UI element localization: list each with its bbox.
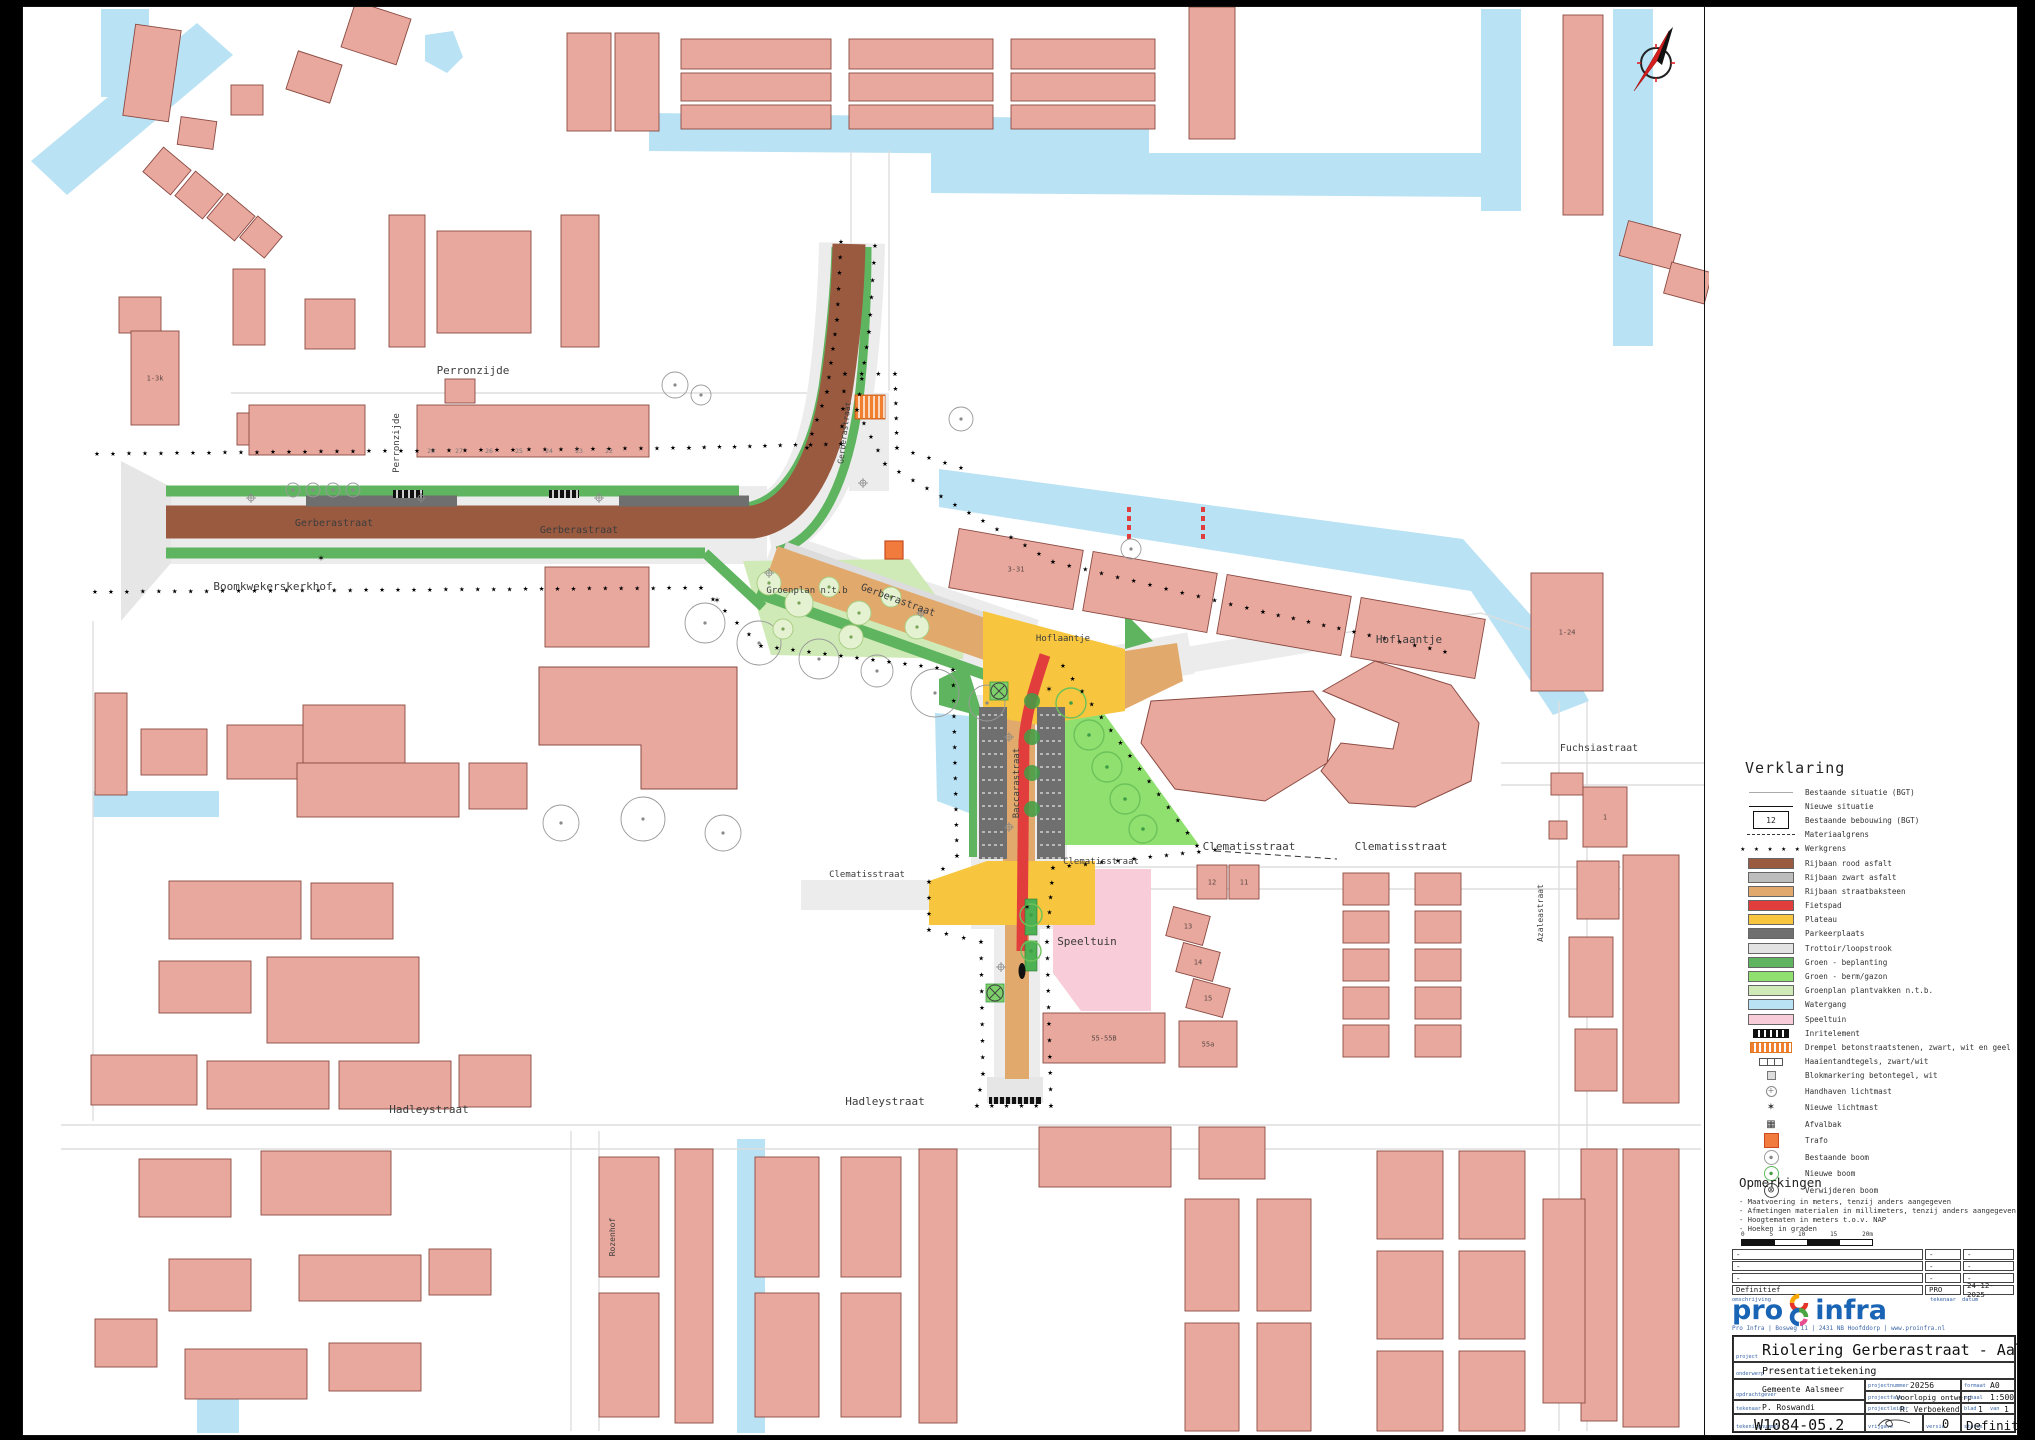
svg-text:23: 23 <box>575 447 583 455</box>
legend-swatch-tiles <box>1745 1058 1797 1066</box>
svg-text:★: ★ <box>1066 561 1072 571</box>
notes-list: - Maatvoering in meters, tenzij anders a… <box>1739 1197 2016 1233</box>
legend-label: Drempel betonstraatstenen, zwart, wit en… <box>1797 1043 2011 1052</box>
svg-text:★: ★ <box>1046 1003 1052 1013</box>
svg-text:★: ★ <box>854 653 860 663</box>
legend-item: Watergang <box>1745 998 2005 1012</box>
legend-item: Rijbaan straatbaksteen <box>1745 884 2005 898</box>
logo-knot-icon <box>1784 1293 1814 1327</box>
svg-text:★: ★ <box>1048 1085 1054 1095</box>
svg-text:★: ★ <box>1147 580 1153 590</box>
tb-project-label: project <box>1736 1354 1758 1360</box>
svg-text:★: ★ <box>682 583 688 593</box>
svg-text:★: ★ <box>876 369 882 379</box>
svg-text:★: ★ <box>619 584 625 594</box>
revision-cell: - <box>1732 1261 1923 1272</box>
svg-text:★: ★ <box>1047 1035 1053 1045</box>
legend-swatch-fill <box>1745 985 1797 996</box>
legend-item: Trafo <box>1745 1132 2005 1149</box>
svg-text:✶: ✶ <box>1024 902 1030 913</box>
svg-text:25: 25 <box>515 447 523 455</box>
svg-text:★: ★ <box>894 443 900 453</box>
tb-vrijgave-cell: vrijgave <box>1865 1414 1923 1432</box>
svg-text:★: ★ <box>142 449 148 459</box>
legend-swatch-fill <box>1745 900 1797 911</box>
scale-tick-label: 15 <box>1830 1231 1837 1238</box>
legend-label: Handhaven lichtmast <box>1797 1087 1892 1096</box>
svg-text:★: ★ <box>954 820 960 830</box>
svg-text:★: ★ <box>1115 572 1121 582</box>
legend-label: Trafo <box>1797 1136 1828 1145</box>
legend-swatch-stars: ★ ★ ★ ★ ★ <box>1745 844 1797 853</box>
svg-text:★: ★ <box>1291 614 1297 624</box>
tb-formaat-cell: formaat A0 <box>1961 1379 2015 1391</box>
legend-item: Groen - beplanting <box>1745 955 2005 969</box>
svg-text:★: ★ <box>140 587 146 597</box>
legend-label: Rijbaan straatbaksteen <box>1797 887 1906 896</box>
svg-text:★: ★ <box>828 358 834 368</box>
tb-tekeningnummer-cell: tekeningnummer W1084-05.2 <box>1733 1414 1865 1432</box>
title-block: project Riolering Gerberastraat - Aalsme… <box>1732 1335 2016 1433</box>
svg-text:Gerberastraat: Gerberastraat <box>295 518 373 529</box>
company-logo: pro infra <box>1732 1293 1887 1327</box>
svg-text:★: ★ <box>824 387 830 397</box>
svg-text:★: ★ <box>427 585 433 595</box>
legend-item: Plateau <box>1745 913 2005 927</box>
svg-text:★: ★ <box>938 492 944 502</box>
svg-text:★: ★ <box>867 310 873 320</box>
svg-text:★: ★ <box>1137 764 1143 774</box>
legend-item: Speeltuin <box>1745 1012 2005 1026</box>
svg-text:★: ★ <box>1060 661 1066 671</box>
revision-cell: - <box>1963 1261 2014 1272</box>
legend-swatch-box12: 12 <box>1745 811 1797 829</box>
legend-label: Rijbaan zwart asfalt <box>1797 873 1896 882</box>
svg-text:★: ★ <box>934 663 940 673</box>
svg-text:★: ★ <box>717 442 723 452</box>
svg-text:Hoflaantje: Hoflaantje <box>1376 633 1442 646</box>
svg-text:★: ★ <box>670 443 676 453</box>
svg-text:★: ★ <box>1196 592 1202 602</box>
svg-text:Gerberastraat: Gerberastraat <box>540 525 618 536</box>
svg-text:★: ★ <box>1045 953 1051 963</box>
legend-item: +Handhaven lichtmast <box>1745 1083 2005 1100</box>
tb-onderwerp-value: Presentatietekening <box>1762 1366 1876 1377</box>
tb-blad-value: 1 <box>1978 1405 1983 1414</box>
note-line: - Afmetingen materialen in millimeters, … <box>1739 1206 2016 1215</box>
legend-label: Watergang <box>1797 1000 1846 1009</box>
legend-label: Bestaande situatie (BGT) <box>1797 788 1915 797</box>
tb-status-cell: status Definitief <box>1961 1414 2015 1432</box>
svg-text:★: ★ <box>823 439 829 449</box>
legend-swatch-inrit <box>1745 1029 1797 1038</box>
svg-text:★: ★ <box>835 299 841 309</box>
svg-text:★: ★ <box>1108 725 1114 735</box>
svg-text:★: ★ <box>1047 907 1053 917</box>
legend-swatch-fill <box>1745 957 1797 968</box>
svg-text:★: ★ <box>861 358 867 368</box>
panel-divider <box>1704 7 1705 1435</box>
svg-text:★: ★ <box>859 374 865 384</box>
logo-pro-text: pro <box>1732 1295 1783 1326</box>
svg-text:★: ★ <box>571 584 577 594</box>
svg-text:★: ★ <box>1049 878 1055 888</box>
svg-text:★: ★ <box>603 584 609 594</box>
revision-cell: - <box>1732 1273 1923 1284</box>
revision-cell: - <box>1925 1273 1961 1284</box>
svg-text:★: ★ <box>1118 738 1124 748</box>
legend-swatch-fill <box>1745 999 1797 1010</box>
svg-text:★: ★ <box>92 587 98 597</box>
signature-scribble <box>1874 1416 1914 1430</box>
svg-text:★: ★ <box>475 584 481 594</box>
svg-text:★: ★ <box>958 463 964 473</box>
svg-text:★: ★ <box>951 696 957 706</box>
svg-text:★: ★ <box>954 851 960 861</box>
tb-project-value: Riolering Gerberastraat - Aalsmeer <box>1762 1341 2018 1359</box>
svg-text:★: ★ <box>443 585 449 595</box>
svg-text:★: ★ <box>954 836 960 846</box>
svg-text:★: ★ <box>238 448 244 458</box>
scale-tick-label: 0 <box>1741 1231 1745 1238</box>
svg-text:★: ★ <box>1163 584 1169 594</box>
svg-text:★: ★ <box>414 446 420 456</box>
svg-text:★: ★ <box>666 583 672 593</box>
svg-text:★: ★ <box>507 584 513 594</box>
revision-cell: - <box>1925 1261 1961 1272</box>
legend-swatch-fill <box>1745 1014 1797 1025</box>
svg-text:Hadleystraat: Hadleystraat <box>845 1095 924 1108</box>
tb-blad-label: blad <box>1964 1406 1977 1412</box>
svg-text:★: ★ <box>893 413 899 423</box>
scale-bar: 05101520m <box>1741 1231 1873 1246</box>
svg-text:1: 1 <box>1603 814 1607 822</box>
svg-text:★: ★ <box>1442 647 1448 657</box>
tb-versie-value: 0 <box>1942 1417 1949 1431</box>
svg-text:★: ★ <box>1050 863 1056 873</box>
svg-text:★: ★ <box>977 1085 983 1095</box>
svg-text:★: ★ <box>686 443 692 453</box>
svg-text:★: ★ <box>446 445 452 455</box>
svg-text:Groenplan n.t.b: Groenplan n.t.b <box>766 586 847 596</box>
svg-text:★: ★ <box>188 586 194 596</box>
legend-swatch-blok <box>1745 1071 1797 1080</box>
svg-text:★: ★ <box>1180 849 1186 859</box>
svg-text:★: ★ <box>1070 674 1076 684</box>
svg-text:★: ★ <box>1083 565 1089 575</box>
legend-label: Groen - berm/gazon <box>1797 972 1887 981</box>
svg-text:★: ★ <box>841 387 847 397</box>
tb-projectleider-cell: projectleider R. Verboekend <box>1865 1403 1961 1414</box>
svg-text:★: ★ <box>842 369 848 379</box>
legend-swatch-fill <box>1745 872 1797 883</box>
svg-text:★: ★ <box>1047 1052 1053 1062</box>
svg-text:Boomkwekerskerkhof: Boomkwekerskerkhof <box>213 580 332 593</box>
svg-text:★: ★ <box>951 712 957 722</box>
legend-label: Haaientandtegels, zwart/wit <box>1797 1057 1928 1066</box>
svg-text:★: ★ <box>894 428 900 438</box>
svg-text:★: ★ <box>491 584 497 594</box>
tb-projectnummer-cell: projectnummer 20256 <box>1865 1379 1961 1391</box>
svg-text:★: ★ <box>804 443 810 453</box>
svg-text:★: ★ <box>110 449 116 459</box>
svg-text:★: ★ <box>926 925 932 935</box>
legend-swatch-lineb <box>1745 806 1797 807</box>
legend-title: Verklaring <box>1745 759 1845 777</box>
svg-text:11: 11 <box>1240 879 1248 887</box>
legend-swatch-fill <box>1745 914 1797 925</box>
logo-infra-text: infra <box>1815 1295 1887 1326</box>
svg-text:★: ★ <box>722 606 728 616</box>
svg-text:1-24: 1-24 <box>1559 629 1576 637</box>
svg-text:✶: ✶ <box>1046 684 1052 695</box>
svg-text:★: ★ <box>838 651 844 661</box>
svg-text:★: ★ <box>870 655 876 665</box>
svg-text:★: ★ <box>902 659 908 669</box>
svg-text:★: ★ <box>980 1036 986 1046</box>
svg-text:★: ★ <box>979 954 985 964</box>
legend-swatch-fill <box>1745 943 1797 954</box>
svg-text:✶: ✶ <box>318 553 324 564</box>
svg-text:★: ★ <box>926 877 932 887</box>
svg-text:★: ★ <box>961 933 967 943</box>
svg-text:★: ★ <box>979 1003 985 1013</box>
svg-text:★: ★ <box>814 415 820 425</box>
svg-text:★: ★ <box>654 443 660 453</box>
legend-item: Parkeerplaats <box>1745 927 2005 941</box>
revision-row: --- <box>1732 1249 2014 1260</box>
svg-text:Clematisstraat: Clematisstraat <box>1063 857 1139 867</box>
svg-text:★: ★ <box>951 681 957 691</box>
tb-tekeningnummer-value: W1084-05.2 <box>1754 1416 1844 1434</box>
svg-text:★: ★ <box>978 937 984 947</box>
svg-text:★: ★ <box>523 584 529 594</box>
svg-text:★: ★ <box>837 268 843 278</box>
right-panel: Verklaring Bestaande situatie (BGT)Nieuw… <box>1709 7 2017 1435</box>
svg-text:★: ★ <box>989 1101 995 1111</box>
legend-label: Groen - beplanting <box>1797 958 1887 967</box>
svg-text:14: 14 <box>1194 959 1202 967</box>
svg-text:★: ★ <box>1127 751 1133 761</box>
svg-text:★: ★ <box>734 618 740 628</box>
svg-text:1-3k: 1-3k <box>147 375 165 383</box>
svg-text:★: ★ <box>886 657 892 667</box>
svg-text:★: ★ <box>204 586 210 596</box>
tb-projectnummer-label: projectnummer <box>1868 1383 1909 1389</box>
tb-versie-cell: versie 0 <box>1923 1414 1961 1432</box>
legend-item: 12Bestaande bebouwing (BGT) <box>1745 813 2005 827</box>
svg-text:★: ★ <box>861 419 867 429</box>
svg-text:★: ★ <box>710 595 716 605</box>
legend-swatch-dash <box>1745 834 1797 835</box>
svg-text:★: ★ <box>1228 599 1234 609</box>
svg-text:★: ★ <box>918 661 924 671</box>
legend-item: ●Bestaande boom <box>1745 1149 2005 1166</box>
svg-text:★: ★ <box>1275 610 1281 620</box>
svg-text:★: ★ <box>758 641 764 651</box>
svg-text:24: 24 <box>545 447 553 455</box>
tb-projectfase-cell: projectfase Voorlopig ontwerp <box>1865 1391 1961 1403</box>
legend-label: Afvalbak <box>1797 1120 1842 1129</box>
legend-list: Bestaande situatie (BGT)Nieuwe situatie1… <box>1745 785 2005 1198</box>
svg-text:★: ★ <box>1212 595 1218 605</box>
legend-item: Blokmarkering betontegel, wit <box>1745 1069 2005 1083</box>
svg-text:★: ★ <box>838 237 844 247</box>
svg-text:★: ★ <box>980 1020 986 1030</box>
tb-projectnummer-value: 20256 <box>1910 1381 1934 1390</box>
svg-text:★: ★ <box>590 444 596 454</box>
svg-text:★: ★ <box>1366 630 1372 640</box>
svg-text:★: ★ <box>587 584 593 594</box>
legend-item: Groenplan plantvakken n.t.b. <box>1745 984 2005 998</box>
svg-text:★: ★ <box>747 441 753 451</box>
legend-item: Inritelement <box>1745 1026 2005 1040</box>
svg-text:★: ★ <box>462 445 468 455</box>
svg-text:★: ★ <box>1336 624 1342 634</box>
svg-text:★: ★ <box>1185 828 1191 838</box>
svg-text:★: ★ <box>1244 603 1250 613</box>
svg-text:★: ★ <box>1019 1101 1025 1111</box>
svg-text:★: ★ <box>980 1053 986 1063</box>
svg-text:★: ★ <box>302 447 308 457</box>
svg-text:★: ★ <box>1099 712 1105 722</box>
svg-text:★: ★ <box>1164 850 1170 860</box>
svg-text:★: ★ <box>893 384 899 394</box>
tb-opdrachtgever-value: Gemeente Aalsmeer <box>1762 1385 1844 1394</box>
legend-item: ▦Afvalbak <box>1745 1116 2005 1133</box>
legend-label: Speeltuin <box>1797 1015 1846 1024</box>
legend-item: ✶Nieuwe lichtmast <box>1745 1099 2005 1116</box>
svg-text:★: ★ <box>882 459 888 469</box>
legend-label: Groenplan plantvakken n.t.b. <box>1797 986 1933 995</box>
svg-text:★: ★ <box>379 585 385 595</box>
legend-item: Rijbaan rood asfalt <box>1745 856 2005 870</box>
svg-text:★: ★ <box>1146 777 1152 787</box>
svg-text:★: ★ <box>126 449 132 459</box>
svg-text:★: ★ <box>793 440 799 450</box>
svg-text:★: ★ <box>857 389 863 399</box>
svg-text:★: ★ <box>1045 922 1051 932</box>
svg-text:★: ★ <box>732 442 738 452</box>
svg-text:★: ★ <box>866 327 872 337</box>
tb-onderwerp-label: onderwerp <box>1736 1371 1764 1377</box>
plot-sheet-background: { "legend": { "title": "Verklaring", "it… <box>0 0 2035 1440</box>
svg-text:★: ★ <box>952 743 958 753</box>
svg-text:Clematisstraat: Clematisstraat <box>829 870 905 880</box>
svg-text:★: ★ <box>347 585 353 595</box>
svg-text:★: ★ <box>1194 841 1200 851</box>
svg-text:★: ★ <box>974 1101 980 1111</box>
svg-text:★: ★ <box>1048 893 1054 903</box>
svg-text:★: ★ <box>1048 1101 1054 1111</box>
svg-text:★: ★ <box>924 484 930 494</box>
svg-text:★: ★ <box>1147 852 1153 862</box>
legend-swatch-fill <box>1745 886 1797 897</box>
svg-text:★: ★ <box>1044 937 1050 947</box>
legend-label: Bestaande bebouwing (BGT) <box>1797 816 1919 825</box>
svg-text:★: ★ <box>539 584 545 594</box>
svg-text:★: ★ <box>837 253 843 263</box>
svg-text:★: ★ <box>875 446 881 456</box>
tb-formaat-label: formaat <box>1964 1383 1986 1389</box>
svg-text:★: ★ <box>806 647 812 657</box>
svg-text:★: ★ <box>940 864 946 874</box>
svg-text:Hadleystraat: Hadleystraat <box>389 1103 468 1116</box>
svg-text:★: ★ <box>994 524 1000 534</box>
svg-text:★: ★ <box>411 585 417 595</box>
svg-text:★: ★ <box>526 445 532 455</box>
svg-text:★: ★ <box>622 444 628 454</box>
legend-item: ★ ★ ★ ★ ★Werkgrens <box>1745 842 2005 856</box>
svg-text:Perronzijde: Perronzijde <box>392 413 402 473</box>
svg-text:★: ★ <box>746 629 752 639</box>
tb-opdrachtgever-cell: opdrachtgever Gemeente Aalsmeer <box>1733 1379 1865 1400</box>
tb-projectleider-value: R. Verboekend <box>1900 1405 1959 1414</box>
svg-text:★: ★ <box>777 441 783 451</box>
tb-tekenaar-label: tekenaar <box>1736 1406 1761 1412</box>
svg-text:★: ★ <box>809 429 815 439</box>
svg-text:★: ★ <box>864 343 870 353</box>
legend-label: Plateau <box>1797 915 1837 924</box>
svg-text:55-55B: 55-55B <box>1091 1035 1116 1043</box>
svg-text:20: 20 <box>427 447 435 455</box>
svg-text:★: ★ <box>650 583 656 593</box>
svg-text:★: ★ <box>124 587 130 597</box>
legend-label: Werkgrens <box>1797 844 1846 853</box>
legend-item: Groen - berm/gazon <box>1745 969 2005 983</box>
legend-label: Inritelement <box>1797 1029 1860 1038</box>
svg-text:26: 26 <box>485 447 493 455</box>
svg-text:★: ★ <box>1175 815 1181 825</box>
svg-text:★: ★ <box>108 587 114 597</box>
svg-text:★: ★ <box>158 448 164 458</box>
scale-bar-labels: 05101520m <box>1741 1231 1873 1238</box>
tb-tekenaar-cell: tekenaar P. Roswandi <box>1733 1400 1865 1414</box>
svg-text:★: ★ <box>1089 700 1095 710</box>
svg-text:★: ★ <box>558 444 564 454</box>
svg-text:★: ★ <box>896 467 902 477</box>
svg-text:★: ★ <box>334 447 340 457</box>
svg-text:★: ★ <box>966 508 972 518</box>
svg-text:★: ★ <box>834 315 840 325</box>
svg-text:★: ★ <box>854 405 860 415</box>
svg-text:★: ★ <box>926 909 932 919</box>
svg-text:★: ★ <box>980 1069 986 1079</box>
svg-text:★: ★ <box>893 399 899 409</box>
svg-text:★: ★ <box>363 585 369 595</box>
scale-tick-label: 5 <box>1769 1231 1773 1238</box>
legend-item: Drempel betonstraatstenen, zwart, wit en… <box>1745 1040 2005 1054</box>
svg-text:★: ★ <box>1036 549 1042 559</box>
svg-text:★: ★ <box>910 448 916 458</box>
svg-text:Clematisstraat: Clematisstraat <box>1355 840 1448 853</box>
svg-text:Baccarastraat: Baccarastraat <box>1012 748 1022 818</box>
revision-cell: PRO <box>1925 1285 1961 1296</box>
svg-text:★: ★ <box>366 446 372 456</box>
svg-text:Hoflaantje: Hoflaantje <box>1036 634 1090 644</box>
legend-swatch-lm1: + <box>1745 1086 1797 1097</box>
svg-text:Clematisstraat: Clematisstraat <box>1203 840 1296 853</box>
tb-schaal-label: schaal <box>1964 1395 1983 1401</box>
svg-text:★: ★ <box>836 284 842 294</box>
legend-swatch-trafo <box>1745 1133 1797 1148</box>
svg-text:★: ★ <box>979 970 985 980</box>
svg-text:★: ★ <box>869 293 875 303</box>
legend-item: Trottoir/loopstrook <box>1745 941 2005 955</box>
svg-text:★: ★ <box>979 987 985 997</box>
legend-swatch-tree1: ● <box>1745 1150 1797 1165</box>
svg-text:★: ★ <box>634 583 640 593</box>
